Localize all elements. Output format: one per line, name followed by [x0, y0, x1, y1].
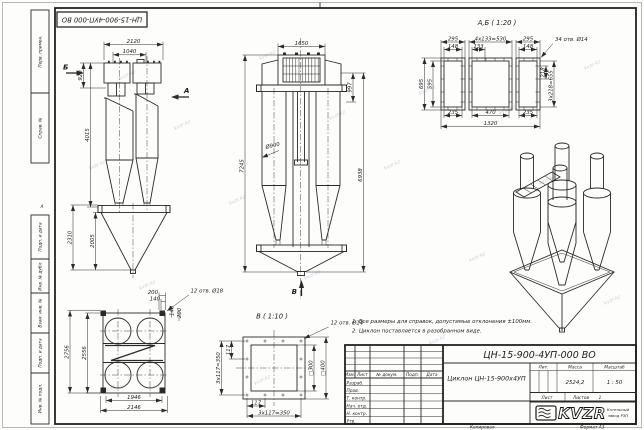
svg-text:А: А — [183, 87, 189, 95]
detail-ab-title: А,Б ( 1:20 ) — [477, 19, 517, 27]
svg-text:kvzr.kz: kvzr.kz — [228, 194, 246, 207]
designation-stamp: ЦН-15-900-4УП-000 ВО — [57, 12, 147, 27]
row-label: Т. контр. — [347, 396, 367, 402]
mass-value: 2524,2 — [566, 380, 585, 386]
dim-label: 295 — [448, 37, 459, 43]
dim-label: 6938 — [358, 168, 364, 182]
front-view: 1650 997 7245 6938 Ø900 В — [239, 38, 366, 299]
dim-label: 133 — [473, 44, 484, 50]
dim-label: 595 — [428, 78, 434, 89]
margin-label: Справ. № — [38, 117, 44, 138]
dim-label: 2005 — [90, 234, 96, 248]
svg-text:kvzr.kz: kvzr.kz — [383, 159, 401, 172]
dim-label: 200 — [177, 307, 183, 318]
dim-label: 4х133=530 — [475, 37, 507, 43]
dim-label: □300 — [308, 360, 314, 376]
col-header: № докум. — [375, 372, 397, 378]
svg-text:kvzr.kz: kvzr.kz — [328, 109, 346, 122]
dim-label: Ø900 — [264, 140, 281, 151]
margin-label: Взам. инв. № — [38, 298, 44, 328]
dim-label: 470 — [485, 110, 496, 116]
dim-label: 3х218=655 — [548, 70, 554, 102]
svg-text:kvzr.kz: kvzr.kz — [603, 294, 621, 307]
svg-text:kvzr.kz: kvzr.kz — [468, 251, 486, 264]
svg-text:kvzr.kz: kvzr.kz — [173, 119, 191, 132]
detail-v-title: В ( 1:10 ) — [256, 313, 288, 321]
svg-text:Б: Б — [63, 64, 68, 72]
sheets-label: Листов — [572, 395, 590, 401]
view-arrow-a: А — [171, 87, 189, 100]
scale-label: Масштаб — [604, 365, 625, 371]
margin-label: Инв. № подл. — [38, 384, 44, 414]
col-header: Лист — [356, 372, 368, 378]
dim-label: 148 — [523, 44, 534, 50]
dim-label: 2756 — [64, 345, 70, 359]
dim-label: 235 — [448, 110, 459, 116]
logo-text: KVZR — [558, 405, 606, 423]
margin-column: Перв. примен. Справ. № Подп. и дата Инв.… — [31, 10, 49, 424]
lit-label: Лит. — [538, 365, 549, 371]
mass-label: Масса — [568, 365, 582, 371]
dim-label: 1650 — [295, 41, 309, 47]
view-arrow-b: Б — [63, 64, 84, 76]
margin-label: Подп. и дата — [38, 222, 44, 252]
svg-text:kvzr.kz: kvzr.kz — [303, 269, 321, 282]
holes-note: 12 отв. Ø18 — [191, 288, 224, 295]
dim-label: 997 — [347, 82, 353, 93]
margin-label: Перв. примен. — [38, 35, 44, 67]
sheet-label: Лист — [541, 395, 553, 401]
title-block: Изм. Лист № докум. Подп. Дата Разраб. Пр… — [345, 345, 636, 425]
dim-label: 117 — [251, 401, 262, 407]
row-label: Нач. отд. — [347, 403, 368, 409]
company-name: Котельный — [607, 407, 630, 412]
dim-label: 7245 — [239, 159, 245, 173]
dim-label: 218 — [540, 67, 546, 78]
drawing-sheet: kvzr.kz kvzr.kz kvzr.kz kvzr.kz kvzr.kz … — [0, 0, 644, 430]
detail-v: В ( 1:10 ) 12 отв. Ø14 □300 □400 117 3х1… — [216, 313, 364, 419]
dim-label: 200 — [148, 290, 159, 296]
note-line: 1. Все размеры для справок, допустимые о… — [352, 319, 532, 325]
dim-label: 140 — [150, 296, 161, 302]
svg-text:В: В — [292, 288, 297, 296]
dim-label: 117 — [226, 344, 232, 355]
company-name: завод РЗП — [608, 413, 628, 418]
dim-label: 140 — [170, 305, 176, 316]
dim-label: 1320 — [484, 121, 498, 127]
margin-label: Инв. № дубл. — [38, 261, 44, 290]
svg-text:kvzr.kz: kvzr.kz — [583, 59, 601, 72]
svg-text:kvzr.kz: kvzr.kz — [118, 69, 136, 82]
dim-label: 2556 — [82, 346, 88, 360]
dim-label: 3х117=350 — [258, 411, 290, 417]
dim-label: □400 — [320, 360, 326, 376]
row-label: Утв. — [347, 419, 356, 425]
margin-label: Подп. и дата — [38, 338, 44, 368]
plan-view: 2756 2556 1946 2146 200 140 12 отв. Ø18 … — [64, 288, 223, 413]
row-label: Н. контр. — [347, 411, 368, 417]
col-header: Дата — [425, 372, 437, 378]
notes: 1. Все размеры для справок, допустимые о… — [352, 319, 532, 335]
svg-text:kvzr.kz: kvzr.kz — [253, 374, 271, 387]
product-name: Циклон ЦН-15-900х4УП — [447, 375, 526, 383]
scale-value: 1 : 50 — [607, 380, 623, 386]
dim-label: 235 — [523, 110, 534, 116]
svg-text:kvzr.kz: kvzr.kz — [258, 49, 276, 62]
dim-label: 4015 — [85, 128, 91, 142]
col-header: Подп. — [406, 372, 419, 378]
designation: ЦН-15-900-4УП-000 ВО — [483, 350, 596, 361]
isometric-view — [510, 143, 614, 332]
note-line: 2. Циклон поставляется в разобранном вид… — [352, 329, 482, 335]
view-arrow-v: В — [292, 280, 304, 296]
dim-label: 1946 — [127, 395, 141, 401]
svg-text:kvzr.kz: kvzr.kz — [88, 159, 106, 172]
svg-text:ЦН-15-900-4УП-000 ВО: ЦН-15-900-4УП-000 ВО — [61, 16, 142, 24]
dim-label: 2146 — [127, 405, 141, 411]
dim-label: 2310 — [67, 230, 73, 244]
dim-label: 295 — [523, 37, 534, 43]
col-header: Изм. — [345, 372, 355, 378]
zone-marker: А — [40, 204, 44, 210]
holes-note: 34 отв. Ø14 — [555, 36, 588, 43]
company-logo: KVZR Котельный завод РЗП — [536, 405, 630, 423]
dim-label: 2120 — [127, 39, 141, 45]
dim-label: 1040 — [123, 49, 137, 55]
copy-label: Копировал — [470, 425, 495, 430]
dim-label: 148 — [448, 44, 459, 50]
dim-label: 695 — [419, 78, 425, 89]
row-label: Разраб. — [347, 381, 364, 387]
sheets-value: 1 — [599, 395, 602, 401]
dim-label: 3х117=350 — [216, 352, 222, 384]
format-label: Формат А3 — [580, 425, 605, 430]
row-label: Пров. — [347, 388, 360, 394]
